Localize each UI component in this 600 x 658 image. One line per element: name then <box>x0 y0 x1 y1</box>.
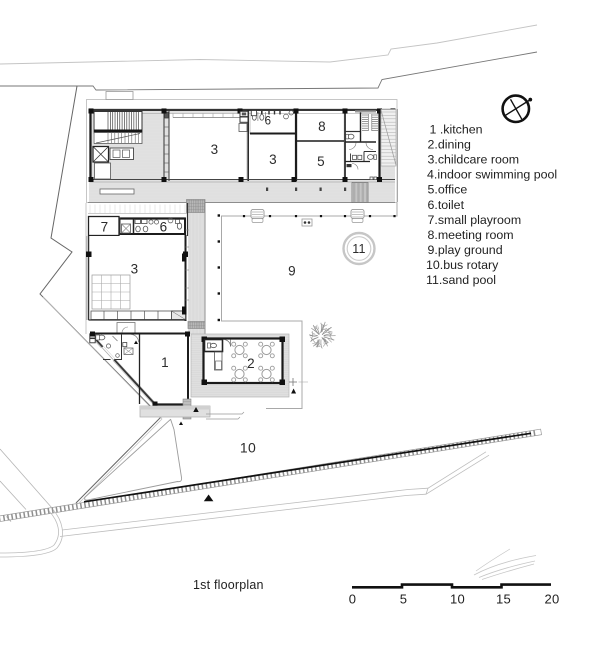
svg-text:10.bus rotary: 10.bus rotary <box>426 258 499 272</box>
svg-text:5.office: 5.office <box>428 183 468 197</box>
svg-text:8.meeting room: 8.meeting room <box>428 228 514 242</box>
svg-text:9.play ground: 9.play ground <box>428 243 503 257</box>
svg-text:10: 10 <box>240 440 256 456</box>
svg-text:10: 10 <box>450 592 465 607</box>
svg-text:6: 6 <box>160 220 168 235</box>
svg-text:2: 2 <box>247 356 255 371</box>
svg-text:3: 3 <box>211 142 219 157</box>
svg-text:9: 9 <box>288 264 296 279</box>
svg-text:3: 3 <box>131 262 139 277</box>
svg-text:5: 5 <box>400 592 408 607</box>
svg-text:15: 15 <box>496 592 511 607</box>
svg-text:11: 11 <box>352 242 366 256</box>
svg-text:1 .kitchen: 1 .kitchen <box>430 123 483 137</box>
svg-text:6: 6 <box>265 116 272 128</box>
svg-text:1st floorplan: 1st floorplan <box>193 578 264 592</box>
svg-text:1: 1 <box>161 355 169 370</box>
svg-text:6.toilet: 6.toilet <box>428 198 465 212</box>
svg-text:3.childcare room: 3.childcare room <box>428 153 520 167</box>
svg-text:8: 8 <box>318 119 326 134</box>
svg-text:2.dining: 2.dining <box>428 138 472 152</box>
svg-text:7.small playroom: 7.small playroom <box>428 213 522 227</box>
svg-text:4.indoor swimming pool: 4.indoor swimming pool <box>427 168 557 182</box>
svg-text:11.sand pool: 11.sand pool <box>426 273 496 287</box>
svg-text:0: 0 <box>349 592 357 607</box>
svg-text:7: 7 <box>101 220 109 235</box>
svg-text:3: 3 <box>269 152 277 167</box>
svg-text:5: 5 <box>317 154 325 169</box>
svg-text:20: 20 <box>544 592 559 607</box>
